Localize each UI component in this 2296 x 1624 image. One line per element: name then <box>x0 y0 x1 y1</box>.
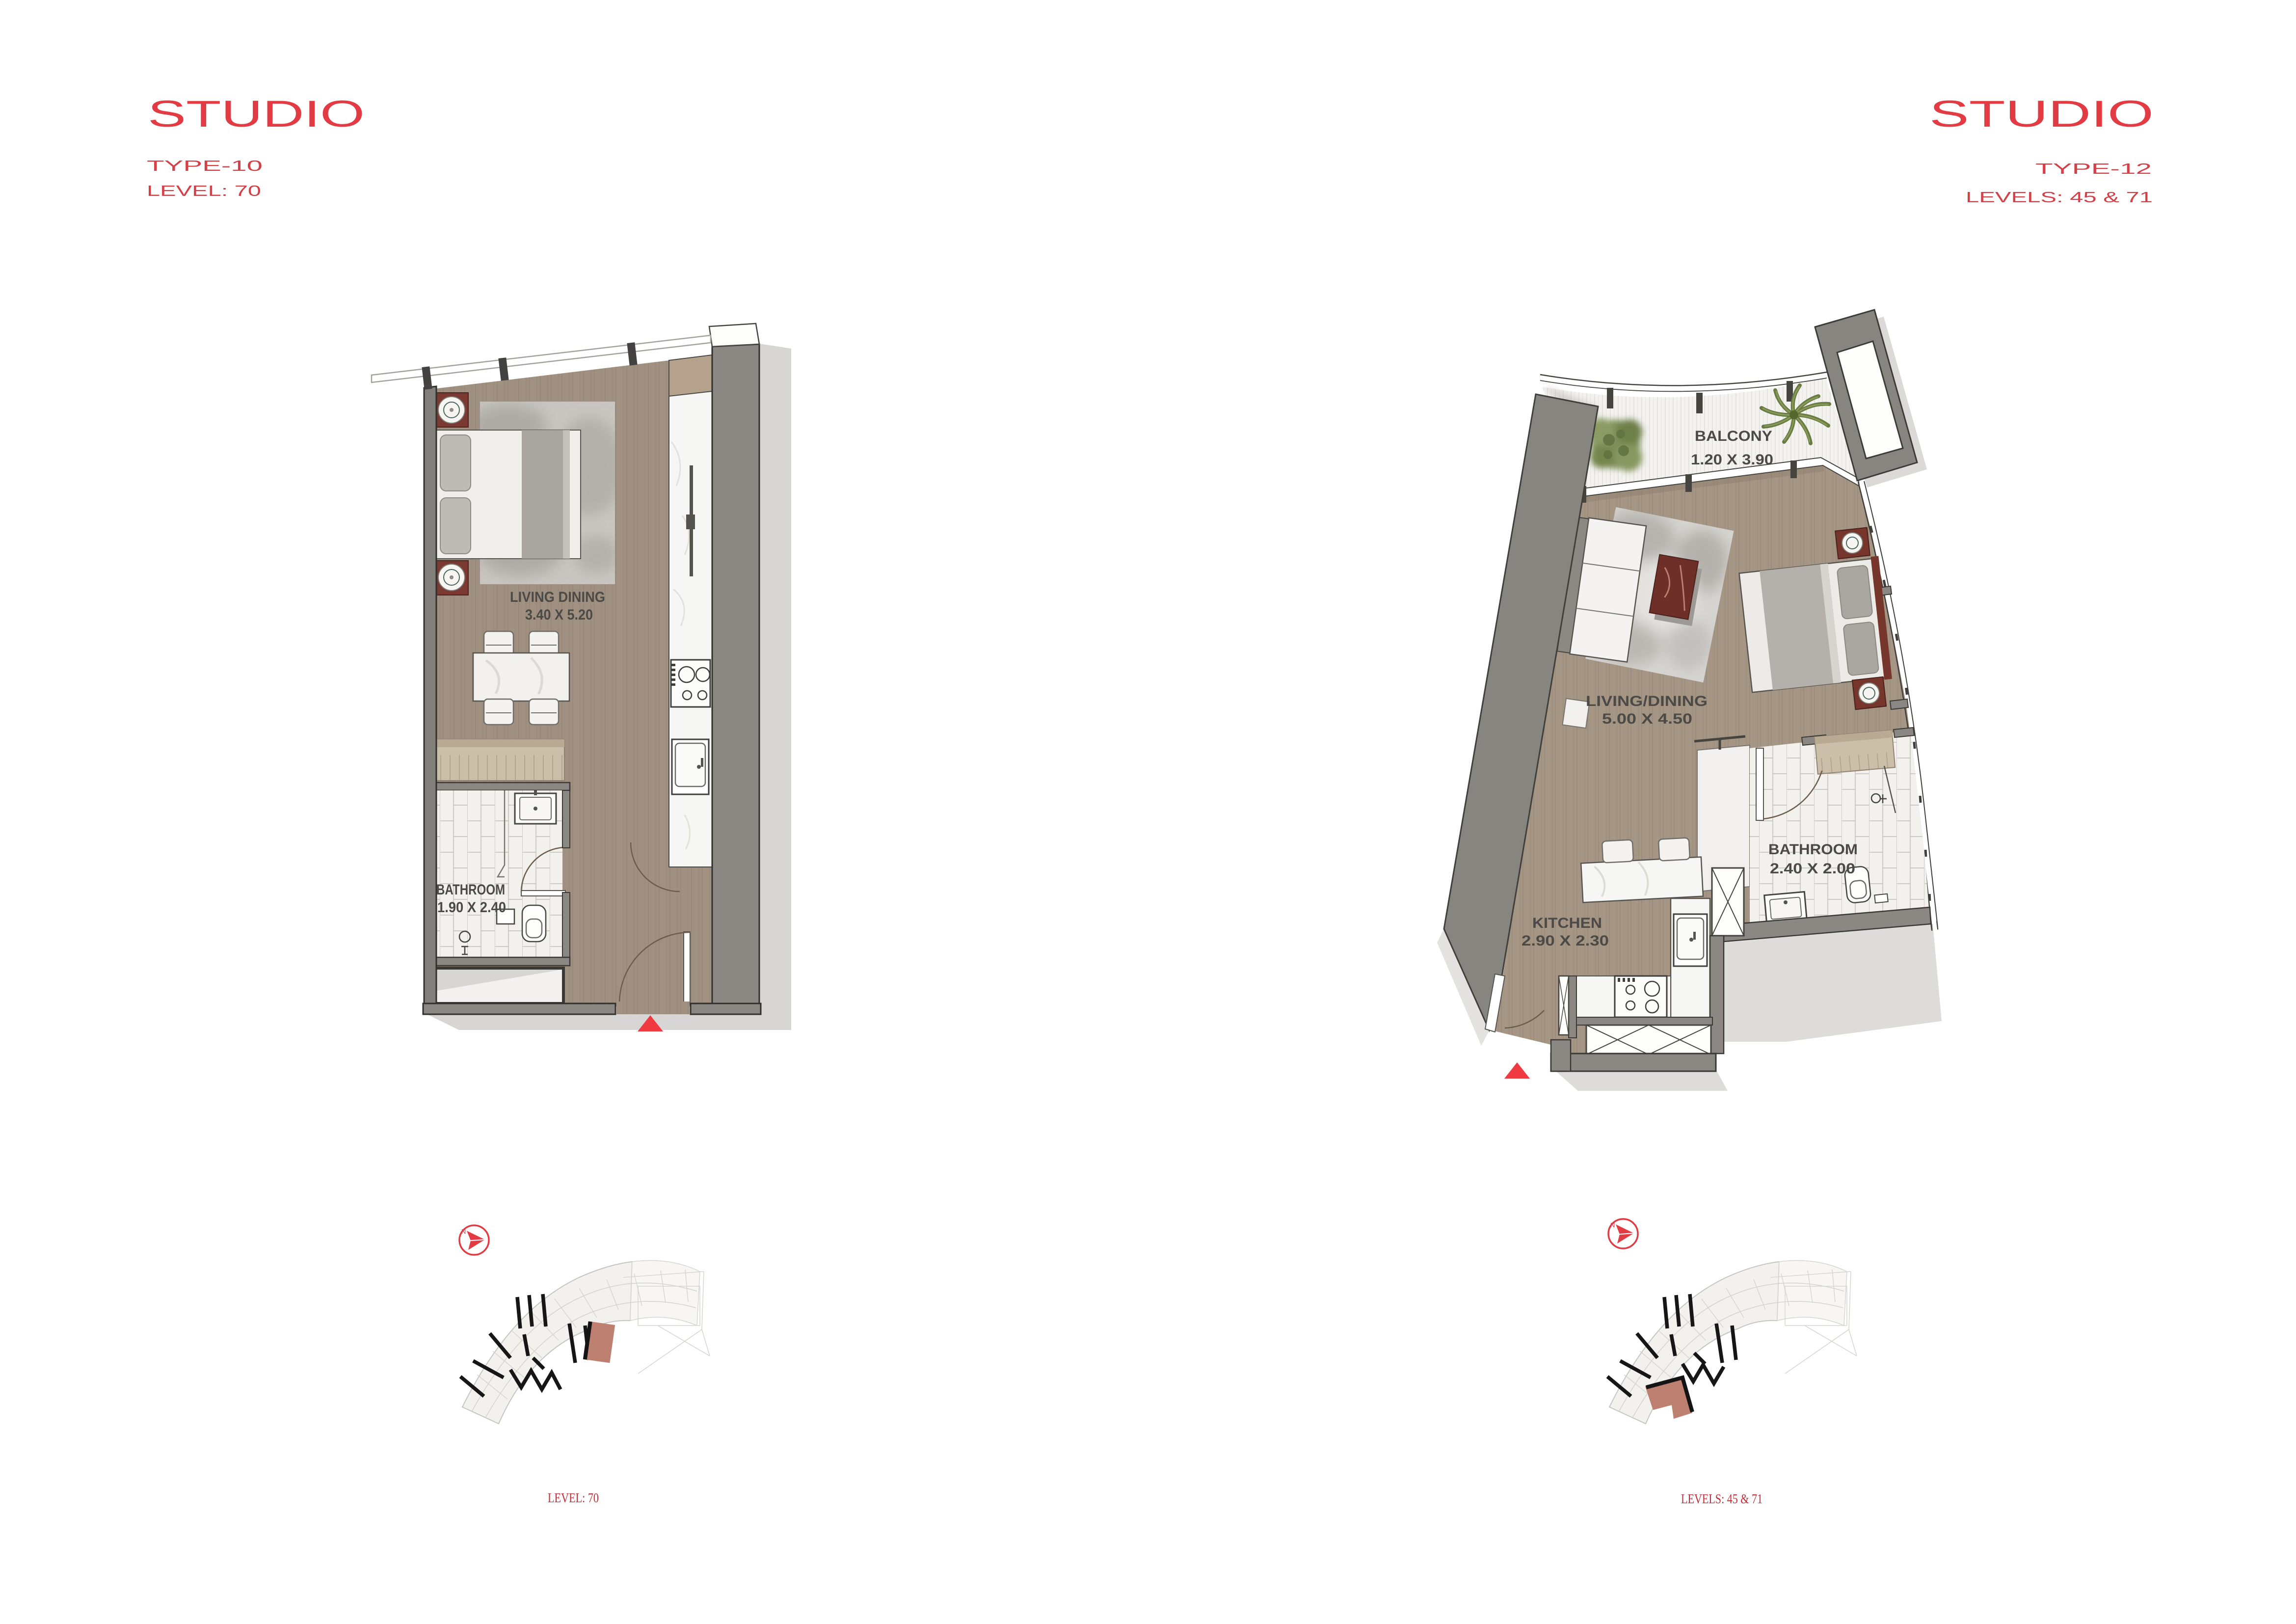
svg-text:LIVING DINING: LIVING DINING <box>510 589 605 605</box>
svg-text:STUDIO: STUDIO <box>148 93 365 135</box>
svg-text:2.40 X 2.00: 2.40 X 2.00 <box>1770 861 1855 877</box>
svg-text:N: N <box>1610 1221 1615 1229</box>
svg-text:3.40 X 5.20: 3.40 X 5.20 <box>525 607 593 623</box>
svg-text:1.90 X 2.40: 1.90 X 2.40 <box>437 899 506 916</box>
svg-text:LEVELS: 45 & 71: LEVELS: 45 & 71 <box>1681 1491 1762 1506</box>
svg-text:LIVING/DINING: LIVING/DINING <box>1586 693 1708 709</box>
svg-text:KITCHEN: KITCHEN <box>1532 915 1602 931</box>
svg-text:BATHROOM: BATHROOM <box>436 882 505 898</box>
svg-text:LEVEL: 70: LEVEL: 70 <box>147 182 261 199</box>
svg-text:STUDIO: STUDIO <box>1929 93 2154 135</box>
svg-text:N: N <box>461 1228 466 1235</box>
svg-text:BALCONY: BALCONY <box>1695 428 1772 444</box>
svg-text:LEVELS: 45 & 71: LEVELS: 45 & 71 <box>1966 189 2153 206</box>
svg-text:5.00 X 4.50: 5.00 X 4.50 <box>1602 711 1692 727</box>
svg-text:BATHROOM: BATHROOM <box>1768 841 1858 858</box>
svg-text:2.90 X 2.30: 2.90 X 2.30 <box>1522 933 1609 949</box>
svg-text:TYPE-10: TYPE-10 <box>147 157 263 174</box>
svg-text:LEVEL: 70: LEVEL: 70 <box>548 1490 599 1505</box>
svg-text:TYPE-12: TYPE-12 <box>2035 160 2152 177</box>
